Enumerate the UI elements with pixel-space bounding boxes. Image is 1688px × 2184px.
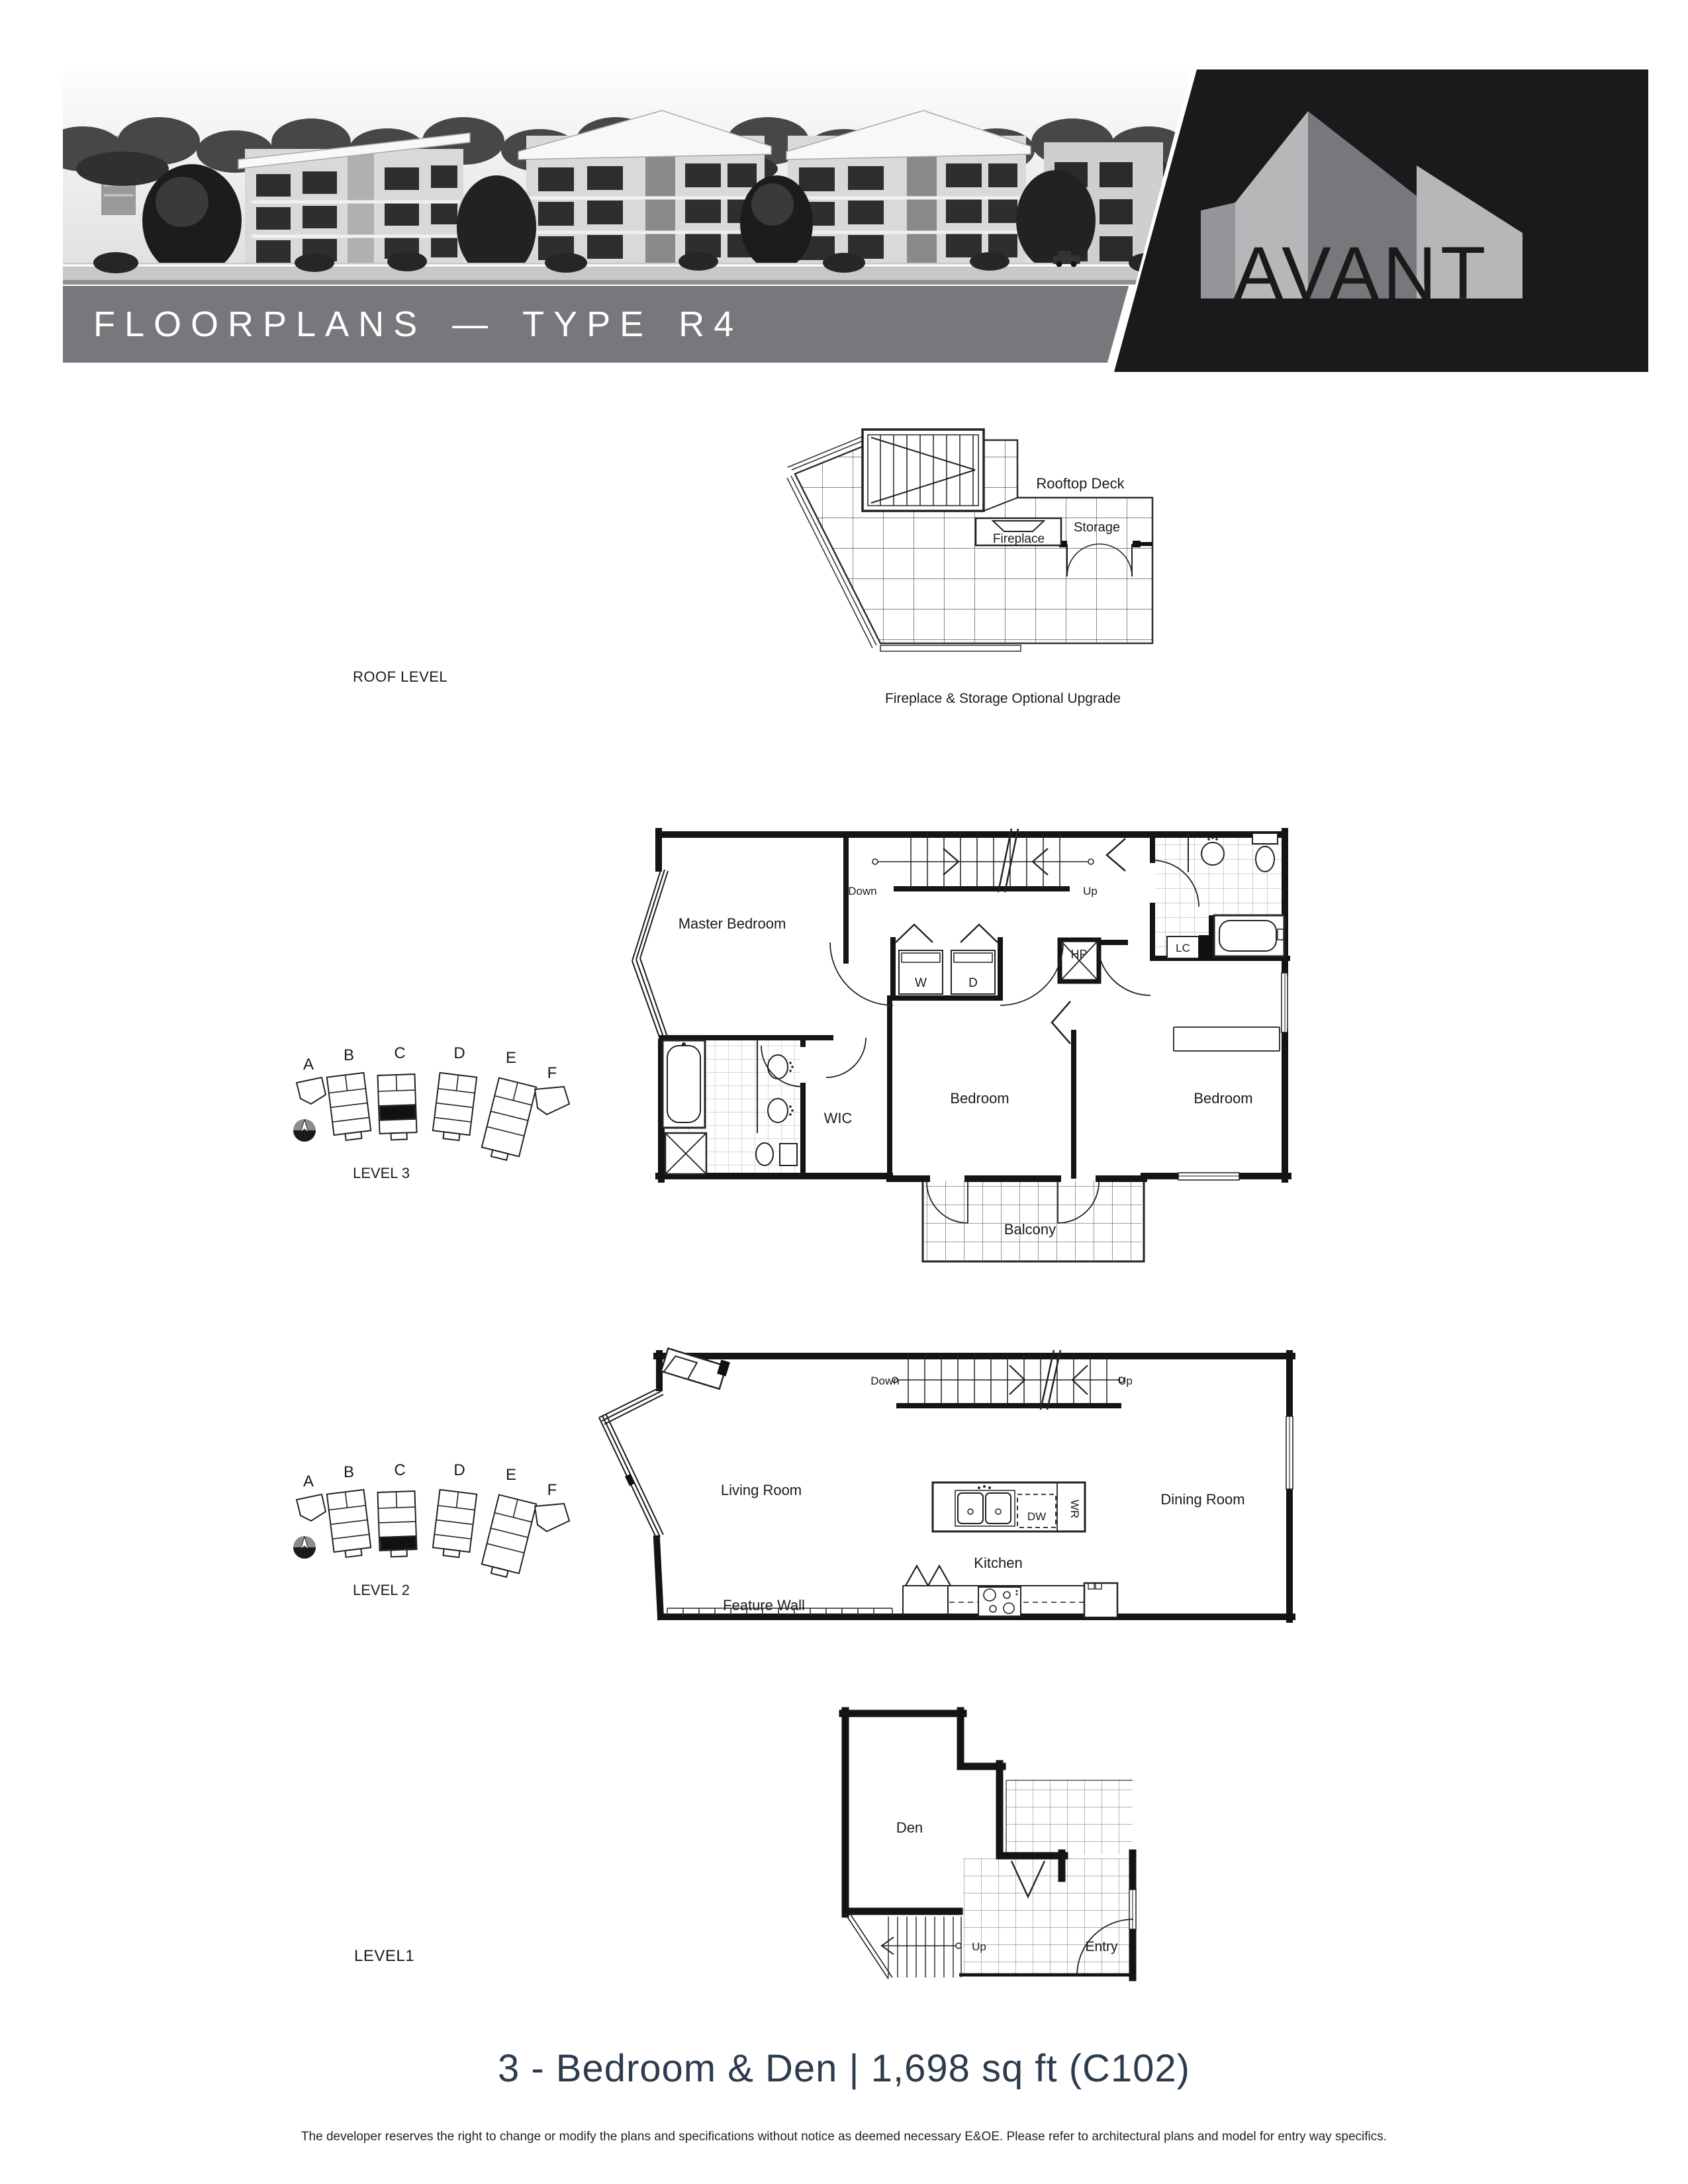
level3-hp-closet: HP (1060, 940, 1099, 981)
compass-n: N (301, 1547, 308, 1558)
compass-icon: N (293, 1536, 316, 1559)
stove-icon (978, 1587, 1021, 1616)
bedroom-right-label: Bedroom (1194, 1090, 1252, 1107)
bedroom-center-label: Bedroom (950, 1090, 1009, 1107)
bathtub-icon (663, 1040, 705, 1128)
feature-wall-label: Feature Wall (723, 1597, 805, 1614)
building-d-label: D (453, 1044, 465, 1062)
building-a-label: A (303, 1473, 314, 1490)
level2-keyplan: N A B C D E F LEVEL 2 (278, 1436, 583, 1602)
roof-level-label: ROOF LEVEL (353, 668, 447, 686)
washer-label: W (915, 976, 927, 990)
sink-icon (768, 1099, 788, 1122)
building-c-label: C (394, 1461, 405, 1479)
fridge-icon (1084, 1583, 1117, 1617)
highlighted-unit (380, 1105, 416, 1120)
level2-kitchen-counter (903, 1566, 1117, 1617)
hp-label: HP (1070, 948, 1087, 961)
level3-balcony (923, 1179, 1144, 1261)
bathtub-icon (1209, 915, 1284, 958)
stairs-down-label: Down (870, 1375, 899, 1387)
building-d-label: D (453, 1461, 465, 1479)
level3-section-label: LEVEL 3 (353, 1165, 410, 1181)
level3-washer-dryer: W D (896, 925, 998, 994)
stairs-up-label: Up (972, 1940, 986, 1953)
building-f-label: F (547, 1481, 557, 1499)
living-room-label: Living Room (721, 1482, 802, 1498)
roof-caption: Fireplace & Storage Optional Upgrade (885, 691, 1121, 706)
building-a-label: A (303, 1056, 314, 1073)
highlighted-unit (381, 1536, 416, 1550)
avant-logo: AVANT Lead The Way (1114, 69, 1648, 372)
keyplan-buildings (297, 1073, 569, 1163)
level1-window (1129, 1889, 1136, 1929)
wr-label: WR (1068, 1500, 1081, 1518)
kitchen-label: Kitchen (974, 1555, 1022, 1571)
fireplace-label: Fireplace (993, 532, 1045, 546)
compass-icon: N (293, 1119, 316, 1142)
building-c-label: C (394, 1044, 405, 1062)
sink-icon (1201, 842, 1224, 865)
banner-title: FLOORPLANS — TYPE R4 (63, 304, 743, 345)
stairs-up-label: Up (1083, 885, 1098, 897)
brand-tagline: Lead The Way (1248, 306, 1475, 336)
building-b-label: B (344, 1046, 354, 1064)
entry-label: Entry (1085, 1939, 1118, 1954)
shelf-niche (1174, 1027, 1280, 1051)
level1-stairs (845, 1913, 961, 1979)
roof-level-plan: Rooftop Deck Storage Fireplace Fireplace… (755, 417, 1165, 715)
stairs-up-label: Up (1118, 1375, 1133, 1387)
storage-label: Storage (1074, 520, 1120, 535)
level2-kitchen-island: DW WR (933, 1482, 1085, 1531)
building-e-label: E (506, 1049, 516, 1067)
building-b-label: B (344, 1463, 354, 1481)
building-e-label: E (506, 1466, 516, 1484)
dining-room-label: Dining Room (1160, 1491, 1244, 1508)
dw-label: DW (1027, 1510, 1046, 1523)
entry-tile-floor (963, 1858, 1133, 1975)
header-photo (63, 69, 1192, 285)
level1-section-label: LEVEL1 (354, 1947, 414, 1966)
lc-closet: LC (1167, 935, 1212, 960)
level2-section-label: LEVEL 2 (353, 1582, 410, 1598)
building-rendering-image (63, 69, 1192, 285)
shower-icon (665, 1133, 706, 1174)
balcony-label: Balcony (1004, 1221, 1056, 1238)
level3-plan: W D HP (616, 801, 1304, 1271)
level1-plan: Den Up Entry (781, 1694, 1158, 1992)
master-bedroom-label: Master Bedroom (679, 915, 786, 932)
sink-icon (768, 1055, 788, 1079)
building-left (238, 133, 470, 265)
wall-stub (717, 1359, 730, 1376)
level3-keyplan: N A B C D E F LEVEL 3 (278, 1019, 583, 1185)
brand-name: AVANT (1234, 232, 1490, 314)
dryer-label: D (968, 976, 978, 990)
level2-plan: DW WR (576, 1337, 1297, 1628)
keyplan-buildings (297, 1490, 569, 1580)
rooftop-deck-label: Rooftop Deck (1036, 475, 1125, 492)
building-f-label: F (547, 1064, 557, 1082)
porch-tile-floor (1006, 1780, 1133, 1854)
unit-title: 3 - Bedroom & Den | 1,698 sq ft (C102) (0, 2046, 1688, 2091)
den-label: Den (896, 1819, 923, 1836)
lc-label: LC (1176, 942, 1190, 954)
level3-stairs (872, 829, 1125, 892)
compass-n: N (301, 1130, 308, 1141)
road (63, 263, 1192, 285)
floorplan-page: FLOORPLANS — TYPE R4 AVANT Lead The Way … (0, 0, 1688, 2184)
floorplans-banner: FLOORPLANS — TYPE R4 (63, 286, 1138, 363)
wic-label: WIC (824, 1110, 853, 1126)
disclaimer-text: The developer reserves the right to chan… (0, 2130, 1688, 2144)
stairs-down-label: Down (848, 885, 876, 897)
